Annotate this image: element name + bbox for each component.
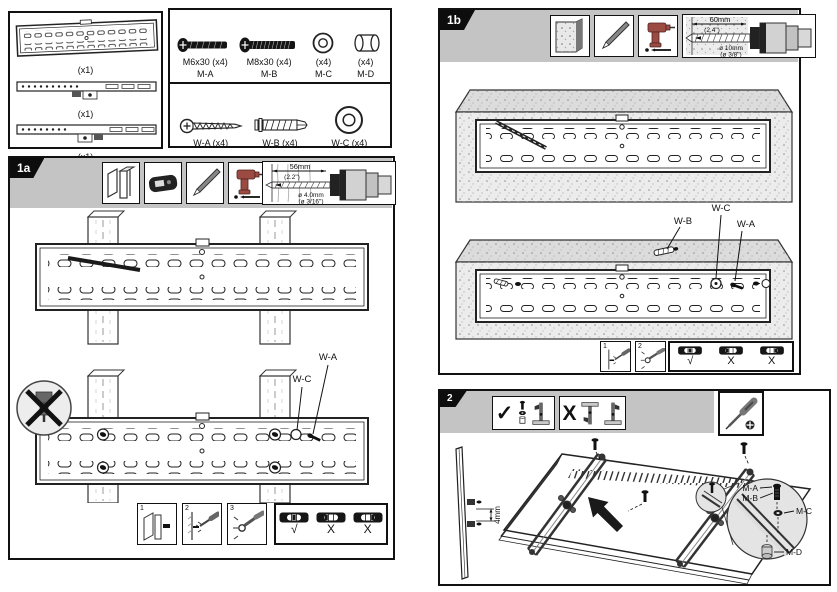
hardware-item-m-d: (x4) M-D: [345, 31, 386, 79]
step-box-3: 3: [227, 503, 267, 545]
hardware-item-w-b: W-B (x4): [245, 114, 314, 148]
wrong-assembly-box: X: [559, 396, 626, 430]
hardware-row-w: W-A (x4) W-B (x4) W-C (x4): [170, 82, 390, 153]
spirit-level-centered-icon: [677, 346, 703, 355]
screw-m6-icon: [176, 35, 234, 55]
level-mark: X: [364, 523, 372, 536]
drill-depth-inches: (2.4"): [704, 27, 720, 34]
mark-stud-icon: [140, 510, 174, 542]
hardware-item-m-b: M8x30 (x4) M-B: [237, 35, 302, 79]
screwdriver-tool-box: [718, 391, 764, 436]
callout-w-b: W-B: [674, 216, 692, 227]
tv-bracket-figure-a: [12, 78, 161, 104]
drill-depth-diagram-1b: 60mm (2.4") ø 10mm (ø 3/8"): [682, 14, 816, 58]
step-box-2: 2: [182, 503, 222, 545]
hardware-code: M-B: [261, 69, 278, 79]
callout-w-c: W-C: [293, 374, 312, 385]
drill-icon: [638, 15, 678, 57]
step-box-2: 2: [635, 341, 666, 372]
concrete-mount-illustration: W-B W-C W-A: [440, 62, 798, 342]
tv-bracket-mounting-illustration: 4mm: [440, 435, 829, 584]
hardware-item-m-c: (x4) M-C: [302, 31, 345, 79]
stud-finder-icon: [144, 162, 182, 204]
bracket-correct-icon: [531, 400, 551, 427]
x-mark: X: [562, 403, 576, 424]
screwdriver-drive-icon: [185, 510, 219, 542]
hardware-code: W-C (x4): [331, 138, 367, 148]
parts-list-box: (x1) (x1): [8, 11, 163, 149]
level-mark: X: [327, 523, 335, 536]
hardware-size: M6x30 (x4): [183, 57, 228, 67]
instruction-sheet: (x1) (x1): [0, 0, 837, 592]
hardware-stack-icon: [516, 399, 528, 427]
no-power-drill-icon: [17, 381, 71, 435]
level-mark: √: [291, 523, 298, 536]
level-mark: X: [727, 355, 734, 368]
callout-m-c: M-C: [796, 506, 812, 516]
hardware-item-m-a: M6x30 (x4) M-A: [174, 35, 237, 79]
level-ok: √: [677, 346, 703, 368]
level-mark: √: [687, 355, 693, 368]
level-check-box: √ X X: [274, 503, 388, 545]
check-mark: ✓: [496, 403, 514, 424]
callout-m-a: M-A: [742, 483, 758, 493]
level-ok: √: [279, 512, 309, 536]
washer-large-icon: [331, 104, 367, 136]
spirit-level-left-icon: [718, 346, 744, 355]
correct-assembly-box: ✓: [492, 396, 555, 430]
panel-step-1b: 1b: [438, 8, 801, 375]
callout-w-a: W-A: [319, 352, 338, 363]
wall-anchor-icon: [250, 114, 310, 136]
drill-depth-label: 60mm: [710, 15, 731, 24]
bracket-wrong-icon: [603, 400, 623, 427]
part-qty: (x1): [12, 109, 159, 119]
callout-m-d: M-D: [786, 547, 802, 557]
level-bad-left: X: [316, 512, 346, 536]
gap-dimension-label: 4mm: [493, 506, 502, 524]
hardware-size: (x4): [316, 57, 332, 67]
hardware-code: W-B (x4): [262, 138, 297, 148]
wall-plate-figure: [12, 16, 161, 60]
level-bad-right: X: [759, 346, 785, 368]
spirit-level-right-icon: [759, 346, 785, 355]
panel-step-2: 2 ✓ X: [438, 389, 831, 586]
hardware-row-m: M6x30 (x4) M-A M8x30 (x4) M-B: [170, 10, 390, 82]
hardware-code: M-A: [197, 69, 214, 79]
washer-small-icon: [309, 31, 337, 55]
lag-screw-icon: [179, 116, 243, 136]
tv-bracket-figure-b: [12, 121, 161, 147]
hardware-size: M8x30 (x4): [247, 57, 292, 67]
level-check-box: √ X X: [668, 341, 794, 372]
drill-depth-label: 56mm: [290, 162, 311, 171]
step-box-1: 1: [137, 503, 177, 545]
screwdriver-drive-icon: [603, 348, 630, 371]
hand-tighten-icon: [638, 348, 665, 371]
screw-m8-icon: [238, 35, 300, 55]
stud-mount-illustration: W-A W-C: [10, 208, 392, 503]
drill-icon: [228, 162, 266, 204]
spacer-icon: [350, 31, 382, 55]
pencil-icon: [186, 162, 224, 204]
stud-wall-icon: [102, 162, 140, 204]
callout-w-a: W-A: [737, 219, 756, 230]
pencil-icon: [594, 15, 634, 57]
callout-m-b: M-B: [742, 493, 758, 503]
hand-tighten-icon: [230, 510, 264, 542]
level-bad-right: X: [353, 512, 383, 536]
hardware-code: M-C: [315, 69, 332, 79]
drill-bit-dia-inches: (ø 3/16"): [298, 199, 323, 205]
hardware-item-w-c: W-C (x4): [315, 104, 384, 148]
concrete-wall-icon: [550, 15, 590, 57]
panel-step-1a: 1a: [8, 156, 395, 560]
drill-depth-diagram-1a: 56mm (2.2") ø 4.0mm (ø 3/16"): [262, 161, 396, 205]
step-box-1: 1: [600, 341, 631, 372]
tv-side-view: 4mm: [456, 447, 502, 579]
hardware-code: W-A (x4): [193, 138, 228, 148]
drill-depth-inches: (2.2"): [284, 174, 300, 181]
screwdriver-icon: [721, 394, 761, 434]
level-bad-left: X: [718, 346, 744, 368]
bracket-wrong-icon: [580, 400, 600, 427]
drill-bit-dia-inches: (ø 3/8"): [720, 52, 741, 58]
part-qty: (x1): [12, 65, 159, 75]
level-mark: X: [768, 355, 775, 368]
hardware-code: M-D: [357, 69, 374, 79]
hardware-size: (x4): [358, 57, 374, 67]
hardware-list-box: M6x30 (x4) M-A M8x30 (x4) M-B: [168, 8, 392, 148]
hardware-item-w-a: W-A (x4): [176, 116, 245, 148]
callout-w-c: W-C: [712, 203, 731, 214]
